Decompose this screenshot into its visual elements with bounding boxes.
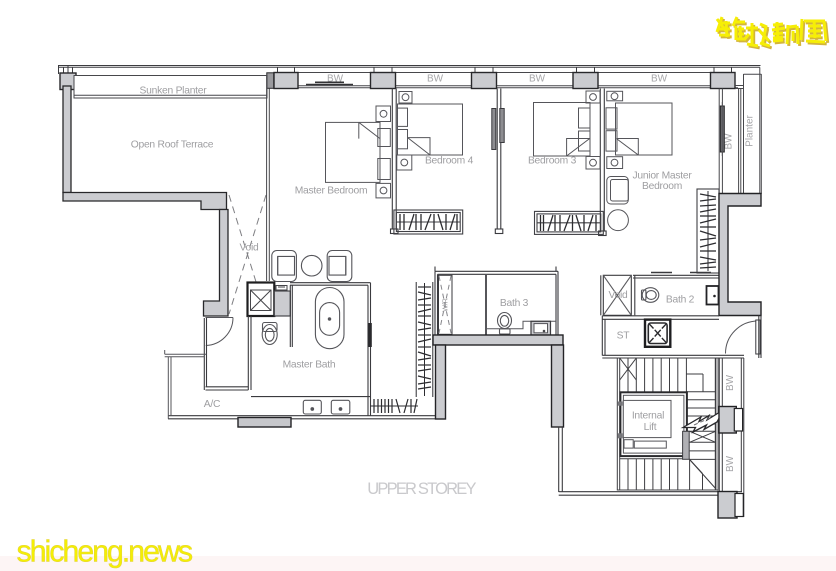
svg-text:Open Roof Terrace: Open Roof Terrace — [131, 140, 214, 151]
svg-text:Master Bath: Master Bath — [283, 360, 336, 371]
svg-text:Bedroom 3: Bedroom 3 — [528, 156, 577, 167]
svg-text:Sunken Planter: Sunken Planter — [140, 86, 208, 97]
svg-text:Bath 3: Bath 3 — [500, 298, 529, 309]
svg-text:Void: Void — [608, 290, 628, 301]
svg-text:Bedroom: Bedroom — [642, 181, 682, 192]
svg-text:BW: BW — [724, 133, 735, 150]
svg-text:BW: BW — [327, 74, 344, 85]
svg-text:Lift: Lift — [644, 422, 657, 433]
svg-text:A/C: A/C — [204, 399, 221, 410]
svg-text:W/R: W/R — [443, 298, 450, 312]
svg-text:Bath 2: Bath 2 — [666, 295, 695, 306]
svg-text:BW: BW — [725, 455, 736, 472]
svg-text:Planter: Planter — [745, 114, 756, 146]
svg-text:Void: Void — [239, 243, 259, 254]
svg-text:BW: BW — [651, 74, 668, 85]
svg-text:BW: BW — [427, 74, 444, 85]
svg-text:ST: ST — [617, 331, 631, 342]
svg-text:BW: BW — [529, 74, 546, 85]
svg-text:shicheng.news: shicheng.news — [17, 535, 193, 569]
svg-text:Bedroom 4: Bedroom 4 — [425, 156, 474, 167]
svg-text:BW: BW — [725, 374, 736, 391]
svg-text:Master Bedroom: Master Bedroom — [295, 186, 368, 197]
svg-text:UPPER STOREY: UPPER STOREY — [367, 480, 476, 498]
svg-text:Internal: Internal — [632, 411, 664, 422]
